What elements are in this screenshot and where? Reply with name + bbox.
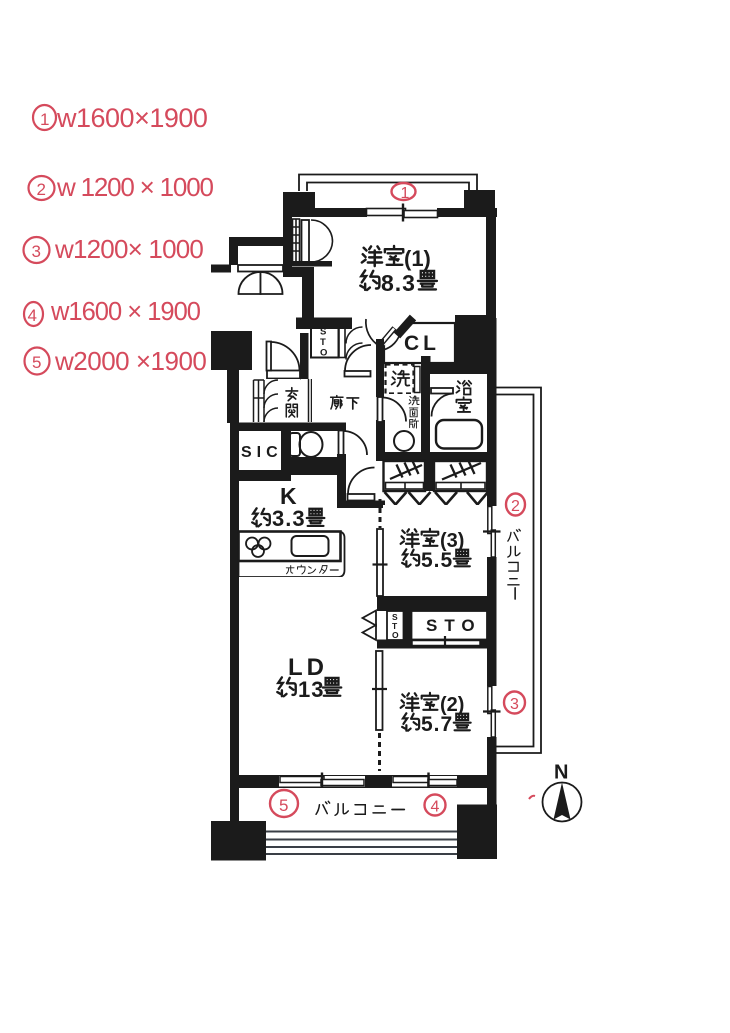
svg-text:5: 5: [32, 353, 41, 372]
svg-text:STO: STO: [426, 616, 482, 635]
svg-text:w1600 × 1900: w1600 × 1900: [50, 298, 201, 326]
svg-text:w1600×1900: w1600×1900: [56, 103, 207, 133]
svg-text:T: T: [320, 337, 326, 348]
svg-text:5.7: 5.7: [421, 713, 453, 736]
svg-text:5: 5: [279, 796, 288, 815]
svg-text:w1200× 1000: w1200× 1000: [54, 234, 203, 264]
svg-text:(1): (1): [404, 246, 431, 271]
svg-text:w2000 ×1900: w2000 ×1900: [54, 346, 206, 376]
svg-text:CL: CL: [404, 332, 440, 355]
svg-text:3: 3: [32, 242, 41, 261]
svg-text:2: 2: [37, 180, 46, 199]
svg-text:1: 1: [401, 185, 410, 202]
svg-text:N: N: [554, 762, 568, 784]
svg-text:13: 13: [298, 677, 324, 702]
svg-text:4: 4: [28, 306, 37, 325]
svg-text:5.5: 5.5: [421, 549, 453, 572]
svg-text:3: 3: [510, 696, 519, 713]
svg-text:O: O: [320, 348, 327, 359]
svg-text:SIC: SIC: [241, 444, 283, 461]
svg-text:O: O: [392, 630, 399, 640]
svg-text:4: 4: [431, 799, 440, 816]
svg-text:8.3: 8.3: [381, 270, 416, 296]
svg-text:1: 1: [40, 110, 49, 129]
svg-text:w 1200 × 1000: w 1200 × 1000: [56, 172, 213, 202]
svg-text:2: 2: [511, 498, 520, 515]
svg-text:3.3: 3.3: [272, 506, 306, 531]
